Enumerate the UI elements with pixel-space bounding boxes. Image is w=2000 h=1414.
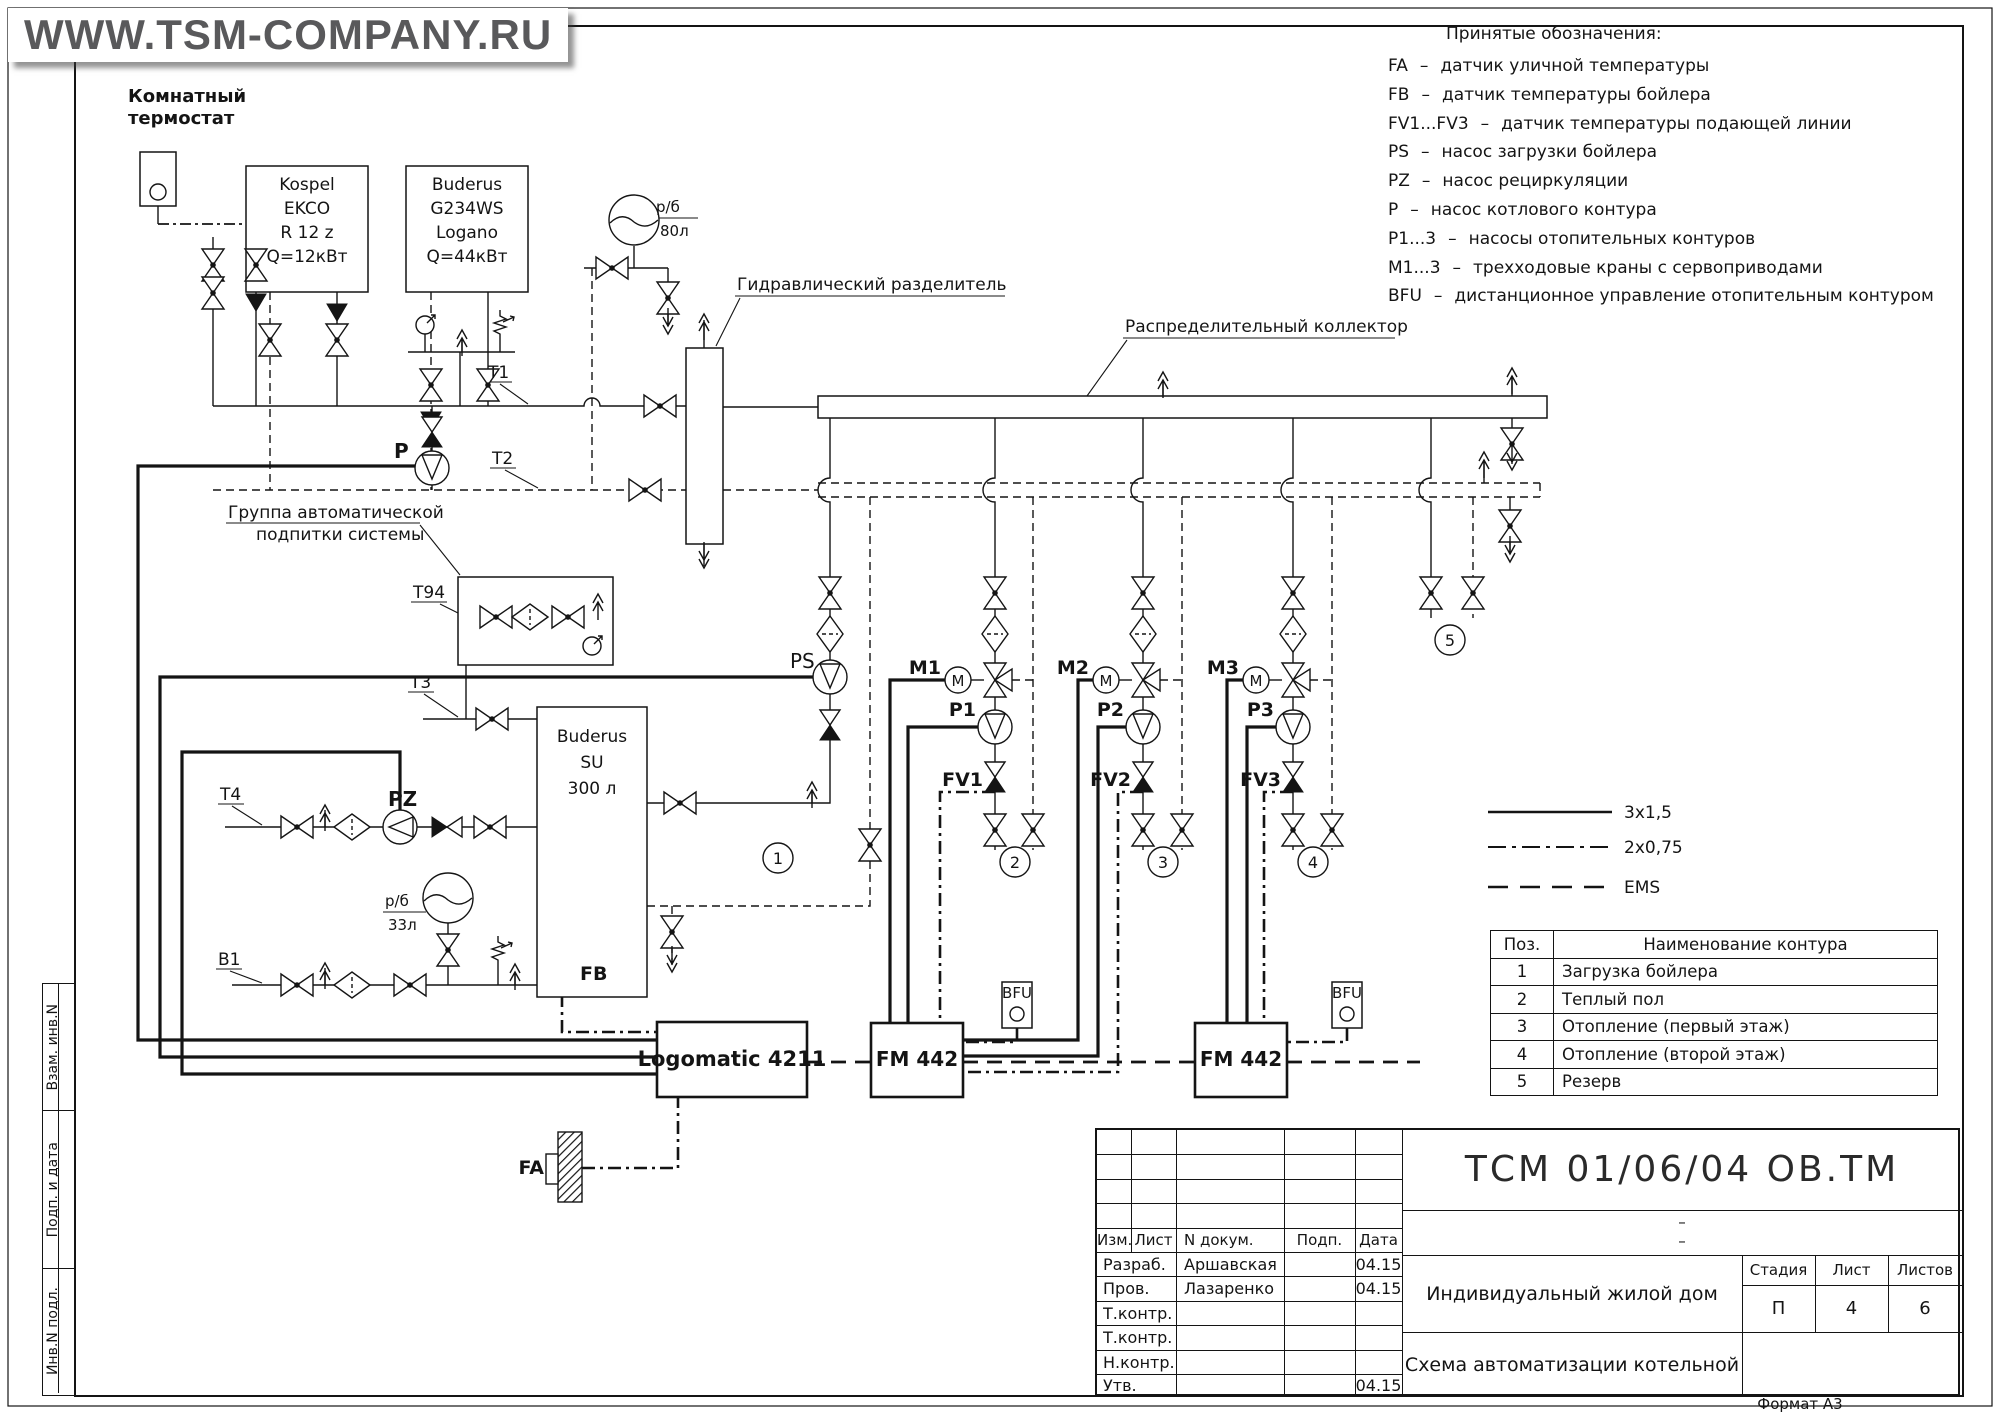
tag-t94: T94: [412, 583, 445, 603]
servo-motor-m3: M: [1243, 667, 1282, 693]
check-valve-icon: [432, 817, 462, 837]
tag-p3: P3: [1247, 699, 1274, 721]
legend-title: Принятые обозначения:: [1446, 24, 1973, 44]
filter-icon: [982, 616, 1008, 652]
distribution-collector-symbol: [818, 396, 1547, 418]
valve-icon: [394, 974, 426, 996]
dash-bottom: –: [1402, 1232, 1962, 1251]
filter-icon: [1130, 616, 1156, 652]
legend-code: FV1...FV3: [1388, 110, 1469, 139]
kospel-line-3: R 12 z: [280, 223, 333, 243]
tank-line-1: Buderus: [557, 727, 627, 747]
separator-label: Гидравлический разделитель: [737, 275, 1007, 295]
legend-row: FB – датчик температуры бойлера: [1388, 81, 1973, 110]
contour-row: 1 Загрузка бойлера: [1491, 958, 1938, 986]
contour-table: Поз. Наименование контура 1 Загрузка бой…: [1490, 930, 1938, 1096]
date-approver: 04.15: [1355, 1375, 1402, 1396]
contour-pos: 4: [1491, 1041, 1554, 1069]
legend-desc: датчик температуры подающей линии: [1501, 110, 1851, 139]
grid-line: [1284, 1130, 1285, 1394]
buffer-tank-box: [537, 707, 647, 997]
strip-label-inv: Инв.N подл.: [45, 1287, 61, 1375]
circuit-badge-2: 2: [1010, 853, 1020, 872]
contour-pos: 1: [1491, 958, 1554, 986]
valve-icon: [629, 479, 661, 501]
grid-line: [1097, 1154, 1402, 1155]
wire-label-dashed: EMS: [1624, 878, 1660, 898]
check-valve-icon: [422, 417, 442, 447]
legend-desc: насос котлового контура: [1431, 196, 1657, 225]
document-dashes: – –: [1402, 1210, 1962, 1255]
bfu-label-1: BFU: [1002, 984, 1032, 1002]
air-vent-icon: [1507, 368, 1517, 394]
circuit-badge-5: 5: [1445, 631, 1455, 650]
motor-letter: M: [952, 672, 965, 690]
role-tcontrol-1: Т.контр.: [1103, 1302, 1175, 1325]
check-valve-icon: [246, 294, 266, 311]
object-name: Индивидуальный жилой дом: [1402, 1255, 1742, 1332]
contour-name: Отопление (первый этаж): [1554, 1013, 1938, 1041]
kospel-line-2: EKCO: [284, 199, 330, 219]
tag-fa: FA: [518, 1157, 544, 1179]
valve-icon: [661, 916, 683, 948]
legend-code: BFU: [1388, 282, 1422, 311]
bfu-label-2: BFU: [1332, 984, 1362, 1002]
safety-valve-icon: [492, 936, 512, 968]
tag-m2: M2: [1057, 657, 1089, 679]
filter-icon: [1280, 616, 1306, 652]
grid-line: [1097, 1179, 1402, 1180]
format-label: Формат А3: [1700, 1395, 1900, 1413]
check-valve-icon: [820, 710, 840, 740]
valve-icon: [474, 816, 506, 838]
check-valve-icon: [985, 762, 1005, 792]
circuit-badge-4: 4: [1308, 853, 1318, 872]
watermark: WWW.TSM-COMPANY.RU: [8, 8, 568, 62]
exp33-num: р/б: [385, 892, 409, 910]
bfu-dial-icon-2: [1340, 1007, 1354, 1021]
legend-dash: –: [1422, 167, 1431, 196]
fm442-label-2: FM 442: [1200, 1047, 1282, 1071]
role-developer: Разраб.: [1103, 1253, 1175, 1276]
pressure-gauge-icon: [416, 315, 435, 334]
wire-type-legend: 3x1,5 2x0,75 EMS: [1488, 803, 1683, 898]
rev-col-sign: Подп.: [1284, 1229, 1355, 1252]
valve-icon: [1282, 577, 1304, 609]
legend-row: PS – насос загрузки бойлера: [1388, 138, 1973, 167]
legend-dash: –: [1481, 110, 1490, 139]
legend-desc: дистанционное управление отопительным ко…: [1454, 282, 1934, 311]
legend-row: P1...3 – насосы отопительных контуров: [1388, 225, 1973, 254]
valve-icon: [1420, 577, 1442, 609]
contour-row: 5 Резерв: [1491, 1068, 1938, 1096]
contour-row: 2 Теплый пол: [1491, 986, 1938, 1014]
check-valve-icon: [327, 304, 347, 321]
legend-row: M1...3 – трехходовые краны с сервопривод…: [1388, 254, 1973, 283]
legend-code: M1...3: [1388, 254, 1441, 283]
strip-cell-inv: Инв.N подл.: [43, 1269, 74, 1393]
grid-line: [1097, 1203, 1402, 1204]
safety-valve-icon: [494, 310, 514, 342]
sheet-label: Лист: [1815, 1255, 1888, 1285]
pump-p1-icon: [978, 710, 1012, 744]
contour-pos: 2: [1491, 986, 1554, 1014]
legend-dash: –: [1420, 52, 1429, 81]
role-approver: Утв.: [1103, 1375, 1175, 1396]
legend-desc: насос рециркуляции: [1442, 167, 1628, 196]
tag-t2: T2: [491, 449, 513, 469]
buderus-line-1: Buderus: [432, 175, 502, 195]
document-number: ТСМ 01/06/04 ОВ.ТМ: [1402, 1130, 1962, 1210]
legend-row: FA – датчик уличной температуры: [1388, 52, 1973, 81]
legend-code: PS: [1388, 138, 1409, 167]
tag-t3: T3: [409, 673, 431, 693]
three-way-valve-icon: [1282, 663, 1310, 697]
strip-label-podp: Подп. и дата: [45, 1142, 61, 1237]
tag-m1: M1: [909, 657, 941, 679]
role-checker: Пров.: [1103, 1277, 1175, 1300]
valve-icon: [1171, 814, 1193, 846]
valve-icon: [259, 324, 281, 356]
tag-fb: FB: [580, 963, 607, 985]
legend-row: BFU – дистанционное управление отопитель…: [1388, 282, 1973, 311]
pump-pz-icon: [383, 810, 417, 844]
contour-name: Загрузка бойлера: [1554, 958, 1938, 986]
expansion-tank-icon: [609, 195, 659, 245]
valve-icon: [437, 934, 459, 966]
legend-code: FA: [1388, 52, 1408, 81]
rev-col-date: Дата: [1355, 1229, 1402, 1252]
valve-icon: [984, 577, 1006, 609]
title-block: Изм. Лист N докум. Подп. Дата Разраб. Ар…: [1095, 1128, 1960, 1396]
legend-desc: датчик уличной температуры: [1440, 52, 1709, 81]
valve-icon: [1462, 577, 1484, 609]
air-vent-icon: [1479, 452, 1489, 478]
thermostat-label-2: термостат: [128, 108, 235, 129]
pump-p3-icon: [1276, 710, 1310, 744]
tag-t4: T4: [219, 785, 241, 805]
valve-icon: [1132, 814, 1154, 846]
legend-desc: датчик температуры бойлера: [1442, 81, 1711, 110]
tag-p2: P2: [1097, 699, 1124, 721]
dash-top: –: [1402, 1213, 1962, 1232]
date-developer: 04.15: [1355, 1253, 1402, 1276]
fa-sensor-symbol: [546, 1154, 558, 1184]
drawing-sheet: M M M: [0, 0, 2000, 1414]
sheets-label: Листов: [1888, 1255, 1962, 1285]
air-vent-icon: [510, 964, 520, 990]
pressure-gauge-icon: [583, 636, 602, 655]
three-way-valve-icon: [1132, 663, 1160, 697]
sheets-value: 6: [1888, 1285, 1962, 1332]
tag-p1: P1: [949, 699, 976, 721]
three-way-valve-icon: [984, 663, 1012, 697]
pump-p2-icon: [1126, 710, 1160, 744]
valve-icon: [819, 577, 841, 609]
contour-col-name: Наименование контура: [1554, 931, 1938, 959]
valve-icon: [596, 257, 628, 279]
tag-fv3: FV3: [1240, 769, 1281, 791]
wire-label-dashdot: 2x0,75: [1624, 838, 1683, 858]
contour-col-pos: Поз.: [1491, 931, 1554, 959]
air-vent-icon: [699, 314, 709, 340]
rev-col-list: Лист: [1131, 1229, 1176, 1252]
legend-desc: насосы отопительных контуров: [1469, 225, 1756, 254]
tank-line-3: 300 л: [568, 779, 617, 799]
kospel-line-1: Kospel: [279, 175, 335, 195]
contour-header-row: Поз. Наименование контура: [1491, 931, 1938, 959]
thermostat-dial-icon: [150, 184, 166, 200]
shutoff-valves: [202, 249, 1523, 996]
contour-name: Теплый пол: [1554, 986, 1938, 1014]
valve-icon: [281, 816, 313, 838]
circuit-badge-3: 3: [1158, 853, 1168, 872]
pump-p-icon: [415, 451, 449, 485]
legend-row: PZ – насос рециркуляции: [1388, 167, 1973, 196]
exp80-den: 80л: [660, 222, 689, 240]
grid-line: [1176, 1130, 1177, 1394]
check-valve-icon: [1133, 762, 1153, 792]
thermostat-label-1: Комнатный: [128, 86, 246, 107]
strip-cell-podp: Подп. и дата: [43, 1111, 74, 1269]
exp33-den: 33л: [388, 916, 417, 934]
makeup-label-2: подпитки системы: [256, 525, 424, 545]
contour-name: Резерв: [1554, 1068, 1938, 1096]
tag-p: P: [394, 439, 409, 463]
valve-icon: [281, 974, 313, 996]
side-strip: Взам. инв.N Подп. и дата Инв.N подл.: [42, 983, 75, 1396]
name-checker: Лазаренко: [1184, 1277, 1284, 1300]
contour-row: 3 Отопление (первый этаж): [1491, 1013, 1938, 1041]
legend-desc: трехходовые краны с сервоприводами: [1473, 254, 1823, 283]
filter-icon: [334, 972, 370, 998]
collector-label: Распределительный коллектор: [1125, 317, 1408, 337]
legend-dash: –: [1453, 254, 1462, 283]
contour-pos: 3: [1491, 1013, 1554, 1041]
legend-desc: насос загрузки бойлера: [1442, 138, 1658, 167]
air-vent-icon: [1158, 372, 1168, 398]
role-ncontrol: Н.контр.: [1103, 1351, 1175, 1374]
air-vent-icon: [807, 782, 817, 808]
date-checker: 04.15: [1355, 1277, 1402, 1300]
legend-dash: –: [1448, 225, 1457, 254]
pump-ps-icon: [813, 660, 847, 694]
designation-legend: Принятые обозначения: FA – датчик улично…: [1388, 24, 1973, 311]
makeup-label-1: Группа автоматической: [228, 503, 444, 523]
motor-letter: M: [1250, 672, 1263, 690]
tag-ps: PS: [790, 649, 815, 673]
stage-value: П: [1742, 1285, 1815, 1332]
contour-row: 4 Отопление (второй этаж): [1491, 1041, 1938, 1069]
servo-motor-m2: M: [1093, 667, 1132, 693]
stage-label: Стадия: [1742, 1255, 1815, 1285]
tag-b1: B1: [218, 950, 240, 970]
valve-icon: [644, 395, 676, 417]
contour-pos: 5: [1491, 1068, 1554, 1096]
legend-dash: –: [1434, 282, 1443, 311]
sheet-value: 4: [1815, 1285, 1888, 1332]
tag-m3: M3: [1207, 657, 1239, 679]
expansion-tank-icon: [423, 873, 473, 923]
name-developer: Аршавская: [1184, 1253, 1284, 1276]
tag-pz: PZ: [388, 787, 417, 811]
controller-label: Logomatic 4211: [638, 1047, 827, 1071]
wire-label-solid: 3x1,5: [1624, 803, 1672, 823]
buderus-line-3: Logano: [436, 223, 498, 243]
schematic-labels: Комнатный термостат Kospel EKCO R 12 z Q…: [128, 86, 1408, 1179]
circuit-badge-1: 1: [773, 849, 783, 868]
legend-row: FV1...FV3 – датчик температуры подающей …: [1388, 110, 1973, 139]
contour-name: Отопление (второй этаж): [1554, 1041, 1938, 1069]
valve-icon: [1132, 577, 1154, 609]
buderus-line-2: G234WS: [430, 199, 503, 219]
valve-icon: [202, 277, 224, 309]
valve-icon: [984, 814, 1006, 846]
valve-icon: [326, 324, 348, 356]
rev-col-izm: Изм.: [1097, 1229, 1131, 1252]
motor-letter: M: [1100, 672, 1113, 690]
valve-icon: [664, 792, 696, 814]
filter-icon: [817, 616, 843, 652]
tag-fv1: FV1: [942, 769, 983, 791]
legend-dash: –: [1421, 81, 1430, 110]
hydraulic-separator-symbol: [686, 348, 723, 544]
legend-dash: –: [1421, 138, 1430, 167]
legend-dash: –: [1410, 196, 1419, 225]
strip-cell-vzam: Взам. инв.N: [43, 984, 74, 1111]
buderus-line-4: Q=44кВт: [426, 247, 507, 267]
filter-icon: [334, 814, 370, 840]
bfu-dial-icon-1: [1010, 1007, 1024, 1021]
legend-code: P: [1388, 196, 1398, 225]
valve-icon: [1282, 814, 1304, 846]
tag-fv2: FV2: [1090, 769, 1131, 791]
check-valves: [246, 294, 1303, 837]
strip-label-vzam: Взам. инв.N: [45, 1004, 61, 1091]
role-tcontrol-2: Т.контр.: [1103, 1326, 1175, 1349]
servo-motor-m1: M: [945, 667, 984, 693]
legend-code: P1...3: [1388, 225, 1436, 254]
fm442-label-1: FM 442: [876, 1047, 958, 1071]
tag-t1: T1: [487, 363, 509, 383]
check-valve-icon: [1283, 762, 1303, 792]
outdoor-wall-hatch: [558, 1132, 582, 1202]
legend-code: FB: [1388, 81, 1409, 110]
legend-code: PZ: [1388, 167, 1410, 196]
valve-icon: [476, 708, 508, 730]
valve-icon: [202, 249, 224, 281]
sheet-name: Схема автоматизации котельной: [1402, 1332, 1742, 1398]
tank-line-2: SU: [580, 753, 603, 773]
drain-arrow-icon: [667, 946, 677, 972]
valve-icon: [420, 369, 442, 401]
rev-col-doc: N докум.: [1184, 1229, 1284, 1252]
kospel-line-4: Q=12кВт: [266, 247, 347, 267]
valve-icon: [1022, 814, 1044, 846]
exp80-num: р/б: [656, 198, 680, 216]
valve-icon: [859, 829, 881, 861]
valve-icon: [1321, 814, 1343, 846]
legend-row: P – насос котлового контура: [1388, 196, 1973, 225]
